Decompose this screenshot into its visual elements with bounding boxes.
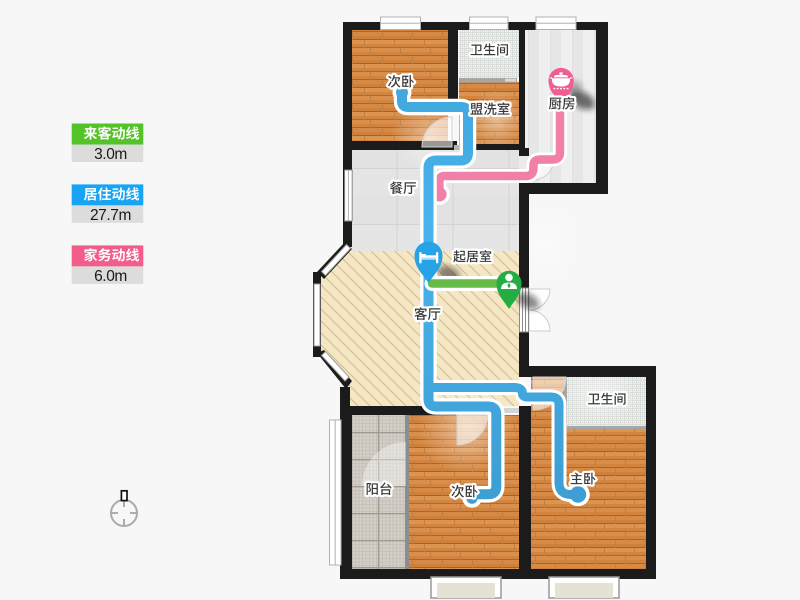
svg-text:6.0m: 6.0m xyxy=(94,268,127,285)
svg-text:3.0m: 3.0m xyxy=(94,146,127,163)
svg-text:27.7m: 27.7m xyxy=(90,207,131,224)
